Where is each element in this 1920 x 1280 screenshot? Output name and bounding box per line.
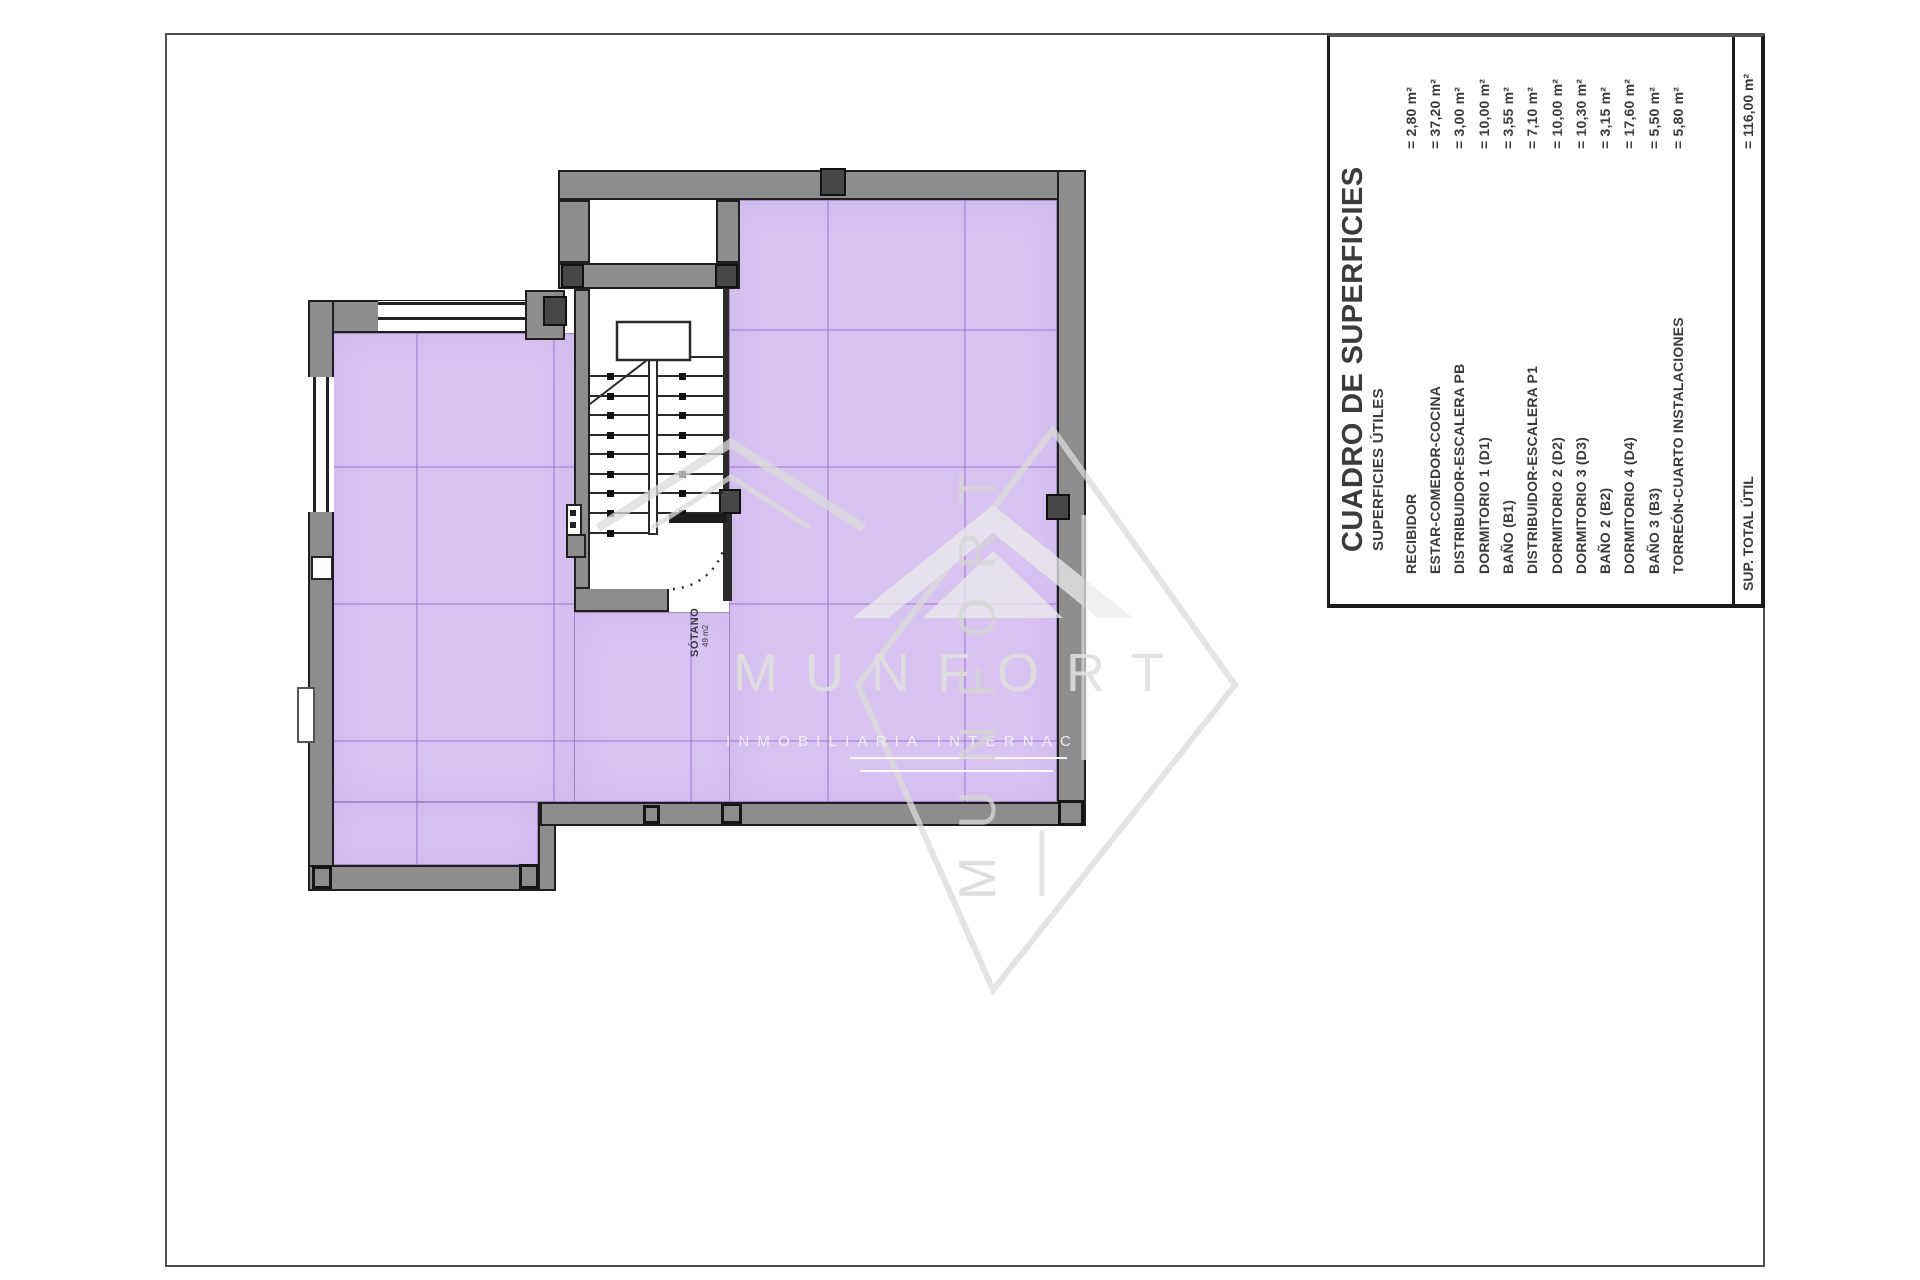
row-label: TORREÓN-CUARTO INSTALACIONES <box>1670 317 1686 574</box>
floorplan-sheet: SÓTANO 49 m2 MUNFORT INMOBILIARIA INTERN… <box>0 0 1920 1280</box>
row-value: = 3,55 m² <box>1500 29 1516 149</box>
table-row: DISTRIBUIDOR-ESCALERA PB = 3,00 m² <box>1449 45 1473 576</box>
row-label: RECIBIDOR <box>1403 494 1419 574</box>
row-label: ESTAR-COMEDOR-COCINA <box>1427 386 1443 574</box>
watermark-underline <box>860 770 1053 772</box>
row-label: DISTRIBUIDOR-ESCALERA PB <box>1451 364 1467 574</box>
row-label: DORMITORIO 1 (D1) <box>1476 437 1492 574</box>
table-row: BAÑO 3 (B3) = 5,50 m² <box>1644 45 1668 576</box>
table-row: ESTAR-COMEDOR-COCINA = 37,20 m² <box>1425 45 1449 576</box>
row-label: DISTRIBUIDOR-ESCALERA P1 <box>1524 366 1540 574</box>
table-row: RECIBIDOR = 2,80 m² <box>1401 45 1425 576</box>
row-label: DORMITORIO 3 (D3) <box>1573 437 1589 574</box>
table-subtitle: SUPERFICIES ÚTILES <box>1370 45 1387 551</box>
table-row: DORMITORIO 4 (D4) = 17,60 m² <box>1619 45 1643 576</box>
table-row: DORMITORIO 2 (D2) = 10,00 m² <box>1547 45 1571 576</box>
row-value: = 3,15 m² <box>1597 29 1613 149</box>
row-value: = 7,10 m² <box>1524 29 1540 149</box>
row-value: = 17,60 m² <box>1621 29 1637 149</box>
row-label: BAÑO 2 (B2) <box>1597 488 1613 574</box>
row-value: = 10,00 m² <box>1476 29 1492 149</box>
table-title: CUADRO DE SUPERFICIES <box>1338 45 1369 552</box>
row-value: = 5,50 m² <box>1646 29 1662 149</box>
surfaces-table: CUADRO DE SUPERFICIES SUPERFICIES ÚTILES… <box>1327 35 1765 608</box>
row-value: = 10,00 m² <box>1549 29 1565 149</box>
table-row: DISTRIBUIDOR-ESCALERA P1 = 7,10 m² <box>1522 45 1546 576</box>
table-row: DORMITORIO 1 (D1) = 10,00 m² <box>1474 45 1498 576</box>
table-row: TORREÓN-CUARTO INSTALACIONES = 5,80 m² <box>1668 45 1692 576</box>
row-value: = 3,00 m² <box>1451 29 1467 149</box>
total-label: SUP. TOTAL ÚTIL <box>1740 476 1756 591</box>
total-value: = 116,00 m² <box>1740 29 1756 149</box>
table-total-row: SUP. TOTAL ÚTIL = 116,00 m² <box>1732 37 1761 604</box>
row-label: DORMITORIO 2 (D2) <box>1549 437 1565 574</box>
table-row: BAÑO 2 (B2) = 3,15 m² <box>1595 45 1619 576</box>
table-row: BAÑO (B1) = 3,55 m² <box>1498 45 1522 576</box>
row-label: BAÑO 3 (B3) <box>1646 488 1662 574</box>
table-rows: RECIBIDOR = 2,80 m² ESTAR-COMEDOR-COCINA… <box>1401 45 1693 576</box>
row-value: = 5,80 m² <box>1670 29 1686 149</box>
row-value: = 2,80 m² <box>1403 29 1419 149</box>
watermark-underline <box>850 757 1067 759</box>
row-value: = 37,20 m² <box>1427 29 1443 149</box>
row-value: = 10,30 m² <box>1573 29 1589 149</box>
table-row: DORMITORIO 3 (D3) = 10,30 m² <box>1571 45 1595 576</box>
row-label: DORMITORIO 4 (D4) <box>1621 437 1637 574</box>
row-label: BAÑO (B1) <box>1500 500 1516 574</box>
